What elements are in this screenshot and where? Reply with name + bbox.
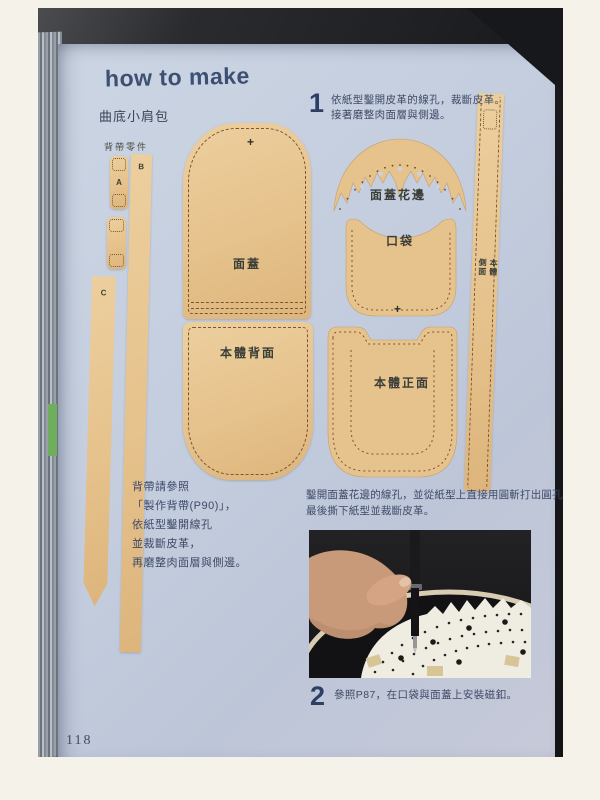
strap-note-line: 「製作背帶(P90)」， [132,497,302,516]
stitch-line [188,128,306,314]
strap-piece-a: A [110,156,128,209]
flap-lace-label: 面蓋花邊 [366,186,430,203]
lace-note-line-1: 鑿開面蓋花邊的線孔，並從紙型上直接用圓斬打出圓孔， [306,487,563,503]
book-photo: how to make 曲底小肩包 背帶零件 A B C + 面蓋 [38,8,563,757]
piece-c-letter: C [91,288,115,298]
flap-pattern: + 面蓋 [183,123,311,319]
strap-note-line: 再磨整肉面層與側邊。 [132,554,302,573]
strap-note-line: 背帶請參照 [132,478,302,497]
strap-note-line: 並裁斷皮革， [132,535,302,554]
stitch-marks [112,194,126,207]
page-title: how to make [105,62,250,92]
body-front-label: 本體正面 [372,374,432,391]
stitch-marks [112,158,126,171]
strap-piece-a2 [107,217,126,269]
step-1-number: 1 [309,90,324,117]
step-1-line-1: 依紙型鑿開皮革的線孔，裁斷皮革。 [331,93,505,108]
body-back-label: 本體背面 [183,344,313,361]
stitch-marks [109,254,124,267]
green-page-sliver [48,404,57,456]
stitch-line [191,302,303,303]
project-subtitle: 曲底小肩包 [99,106,169,125]
strap-note: 背帶請參照 「製作背帶(P90)」， 依紙型鑿開線孔 並裁斷皮革， 再磨整肉面層… [132,478,302,573]
step-2-text: 參照P87，在口袋與面蓋上安裝磁釦。 [334,688,517,703]
body-side-label: 本體側面 [476,258,499,283]
strap-parts-label: 背帶零件 [104,140,148,153]
stitch-marks [109,219,124,232]
piece-b-letter: B [131,162,152,171]
page-number: 118 [66,733,92,749]
step-1-line-2: 接著磨整肉面層與側邊。 [331,108,505,123]
stitch-line [191,308,303,309]
body-back-pattern: 本體背面 [183,322,313,480]
punching-photo [309,530,531,678]
lace-note-line-2: 最後撕下紙型並裁斷皮革。 [306,503,563,519]
step-2-number: 2 [310,683,325,710]
strap-note-line: 依紙型鑿開線孔 [132,516,302,535]
flap-center-mark: + [247,135,254,149]
strap-piece-c: C [83,276,116,607]
pocket-center-mark: + [394,302,401,316]
piece-a-letter: A [110,178,128,187]
pocket-label: 口袋 [370,232,430,249]
step-1-text: 依紙型鑿開皮革的線孔，裁斷皮革。 接著磨整肉面層與側邊。 [331,93,505,123]
body-front-pattern [321,316,464,488]
flap-label: 面蓋 [183,255,311,272]
lace-note: 鑿開面蓋花邊的線孔，並從紙型上直接用圓斬打出圓孔， 最後撕下紙型並裁斷皮革。 [306,487,563,519]
book-page: how to make 曲底小肩包 背帶零件 A B C + 面蓋 [58,44,555,757]
